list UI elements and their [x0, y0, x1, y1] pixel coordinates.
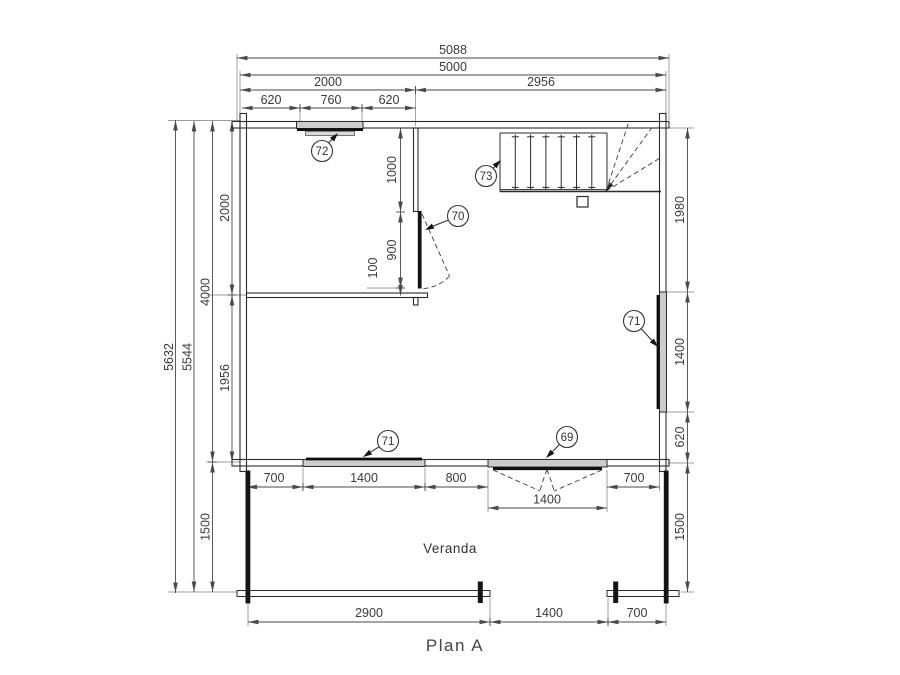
dim-right-620: 620 — [673, 427, 687, 448]
dim-right-1400: 1400 — [673, 338, 687, 366]
dim-bottom-800: 800 — [446, 471, 467, 485]
callout-71-right: 71 — [624, 311, 659, 348]
dim-door70-900: 900 — [385, 240, 399, 261]
dimension-labels: 5088 5000 2000 2956 620 760 620 5632 554… — [162, 43, 687, 620]
callout-71-right-label: 71 — [628, 316, 641, 328]
dim-door70-1000: 1000 — [385, 156, 399, 184]
dim-right-1980: 1980 — [673, 196, 687, 224]
callout-71-bottom: 71 — [363, 431, 399, 458]
dim-top-620b: 620 — [379, 93, 400, 107]
door-70-leaf — [418, 211, 422, 289]
walls — [232, 114, 669, 472]
door-69-double — [488, 460, 607, 492]
callout-72: 72 — [312, 133, 339, 162]
stair-winder-lines — [606, 122, 661, 192]
dim-veranda-1400: 1400 — [535, 606, 563, 620]
window-71-right — [658, 292, 667, 412]
dim-right-1500: 1500 — [673, 513, 687, 541]
dim-door70-100: 100 — [366, 258, 380, 279]
callout-73-label: 73 — [480, 171, 493, 183]
window-71-bottom — [303, 459, 425, 467]
dim-top-2000: 2000 — [314, 75, 342, 89]
callout-72-label: 72 — [316, 146, 329, 158]
dim-left-5632: 5632 — [162, 343, 176, 371]
dim-left-2000: 2000 — [218, 194, 232, 222]
dim-top-2956: 2956 — [527, 75, 555, 89]
callout-70: 70 — [425, 206, 469, 231]
callouts: 72 73 70 71 71 — [312, 133, 659, 458]
callout-69: 69 — [546, 427, 578, 459]
dim-bottom-700a: 700 — [264, 471, 285, 485]
door-70-interior — [418, 211, 450, 289]
veranda-edge-right — [664, 471, 669, 604]
floor-plan-drawing: 5088 5000 2000 2956 620 760 620 5632 554… — [0, 0, 900, 675]
dim-top-760: 760 — [321, 93, 342, 107]
staircase — [500, 122, 661, 208]
dim-top-620a: 620 — [261, 93, 282, 107]
callout-71-bottom-label: 71 — [382, 436, 395, 448]
wall-interior-vertical — [414, 128, 419, 212]
door-jamb-stub — [414, 298, 419, 306]
wall-left — [240, 114, 247, 472]
dim-veranda-2900: 2900 — [355, 606, 383, 620]
veranda-rail-left — [237, 591, 490, 597]
veranda-post-right — [613, 582, 618, 604]
dim-left-1956: 1956 — [218, 364, 232, 392]
dim-top-5000: 5000 — [439, 60, 467, 74]
veranda-post-left — [478, 582, 483, 604]
dim-top-5088: 5088 — [439, 43, 467, 57]
callout-73: 73 — [476, 160, 502, 187]
dim-left-5544: 5544 — [181, 343, 195, 371]
floor-plan-canvas: 5088 5000 2000 2956 620 760 620 5632 554… — [0, 0, 900, 675]
callout-69-label: 69 — [561, 432, 574, 444]
plan-title: Plan A — [426, 636, 484, 655]
dim-bottom-door-1400: 1400 — [533, 493, 561, 507]
stair-newel-post — [577, 197, 588, 208]
dim-bottom-700b: 700 — [624, 471, 645, 485]
window-72 — [297, 122, 364, 136]
dim-bottom-1400a: 1400 — [350, 471, 378, 485]
dim-left-1500: 1500 — [199, 513, 213, 541]
dim-left-4000: 4000 — [199, 278, 213, 306]
veranda-edge-left — [246, 471, 251, 604]
stair-treads — [512, 135, 596, 191]
callout-70-label: 70 — [452, 211, 465, 223]
veranda-label: Veranda — [423, 541, 477, 556]
dim-veranda-700: 700 — [627, 606, 648, 620]
